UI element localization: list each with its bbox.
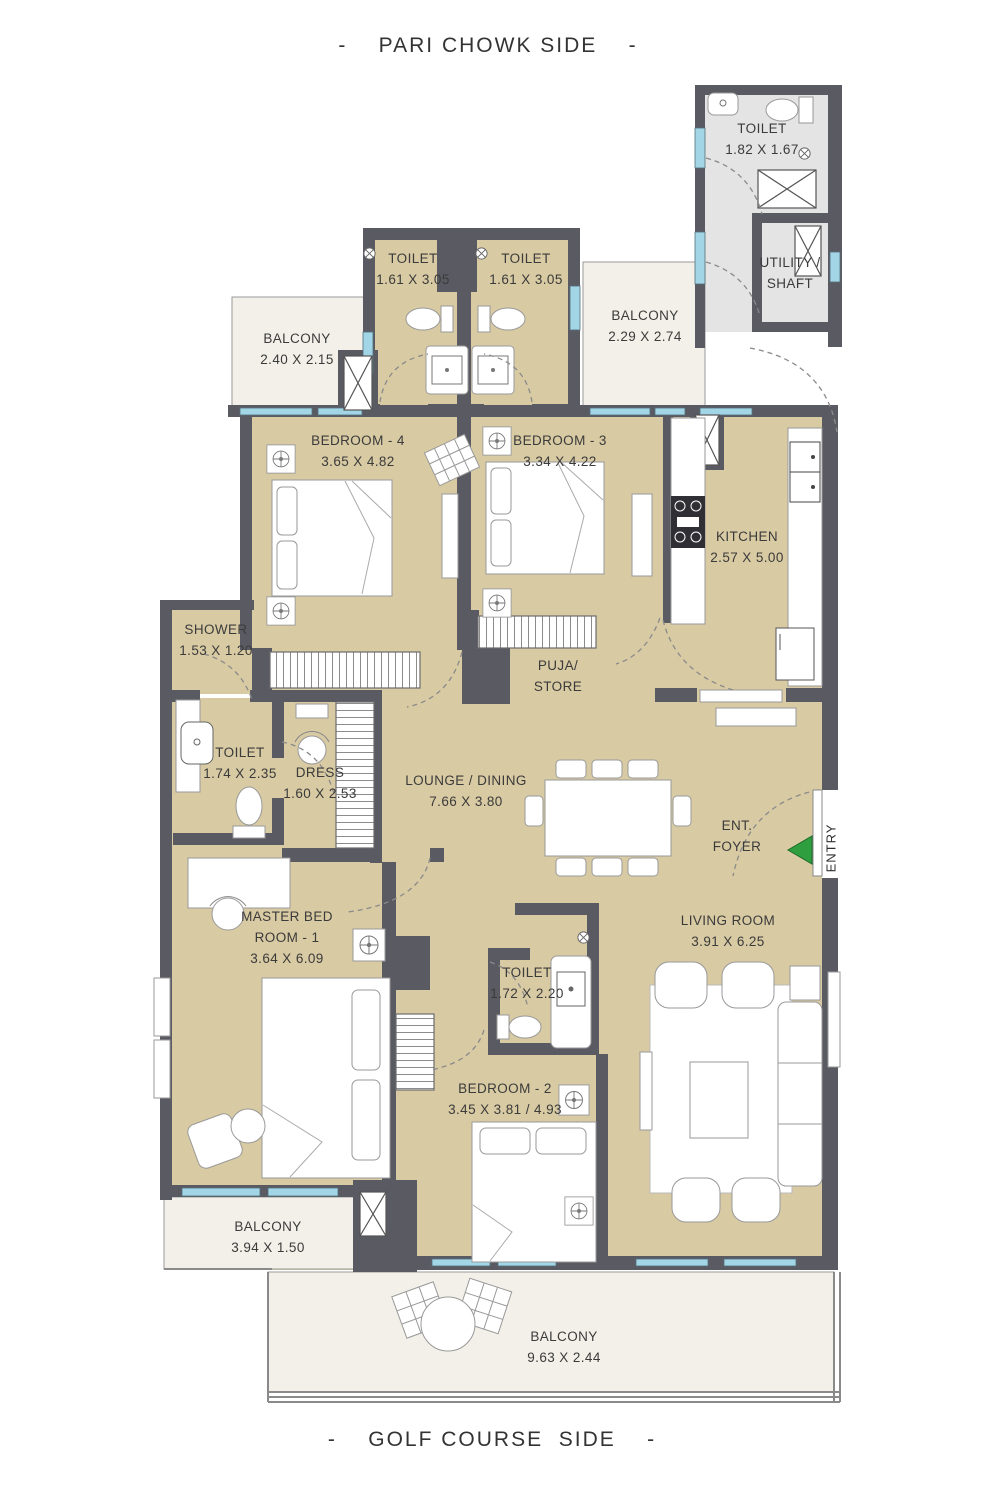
side-table-icon [790, 966, 820, 1000]
lift-shaft-icon [344, 356, 372, 410]
vanity-icon [426, 346, 468, 394]
ac-fan-icon [483, 589, 511, 617]
side-table-icon [231, 1109, 265, 1143]
sideboard-icon [700, 690, 782, 702]
bed-icon [472, 1122, 596, 1262]
patio-table-icon [421, 1297, 475, 1351]
shower-tray-icon [758, 170, 816, 208]
wardrobe-icon [632, 494, 652, 576]
wc-icon [406, 306, 453, 332]
washbasin-icon [708, 93, 738, 115]
floor-plan: - PARI CHOWK SIDE - - GOLF COURSE SIDE -… [0, 0, 1000, 1500]
wc-icon [478, 306, 525, 332]
ac-fan-icon [483, 427, 511, 455]
bed-icon [486, 462, 604, 574]
wc-icon [497, 1015, 541, 1039]
bed-icon [272, 480, 392, 596]
window-frame [828, 972, 840, 1067]
wardrobe-icon [442, 494, 458, 578]
wc-icon [766, 97, 813, 123]
coffee-table-icon [690, 1062, 748, 1138]
balcony-shaft-icon [360, 1192, 386, 1236]
bed-icon [262, 978, 390, 1178]
floor-plan-drawing [0, 0, 1000, 1500]
stove-icon [671, 496, 705, 548]
vanity-icon [472, 346, 514, 394]
ac-fan-icon [267, 445, 295, 473]
sideboard-icon [716, 708, 796, 726]
fridge-icon [776, 628, 814, 680]
utility-duct-icon [795, 226, 821, 276]
vanity-icon [551, 956, 591, 1048]
ac-fan-icon [559, 1085, 589, 1115]
sofa-icon [778, 1002, 822, 1186]
washbasin-icon [181, 722, 213, 764]
cabinet-icon [790, 442, 820, 502]
ac-fan-icon [267, 597, 295, 625]
ac-fan-icon [565, 1197, 593, 1225]
tv-bench-icon [640, 1052, 652, 1130]
ac-fan-icon [353, 929, 385, 961]
